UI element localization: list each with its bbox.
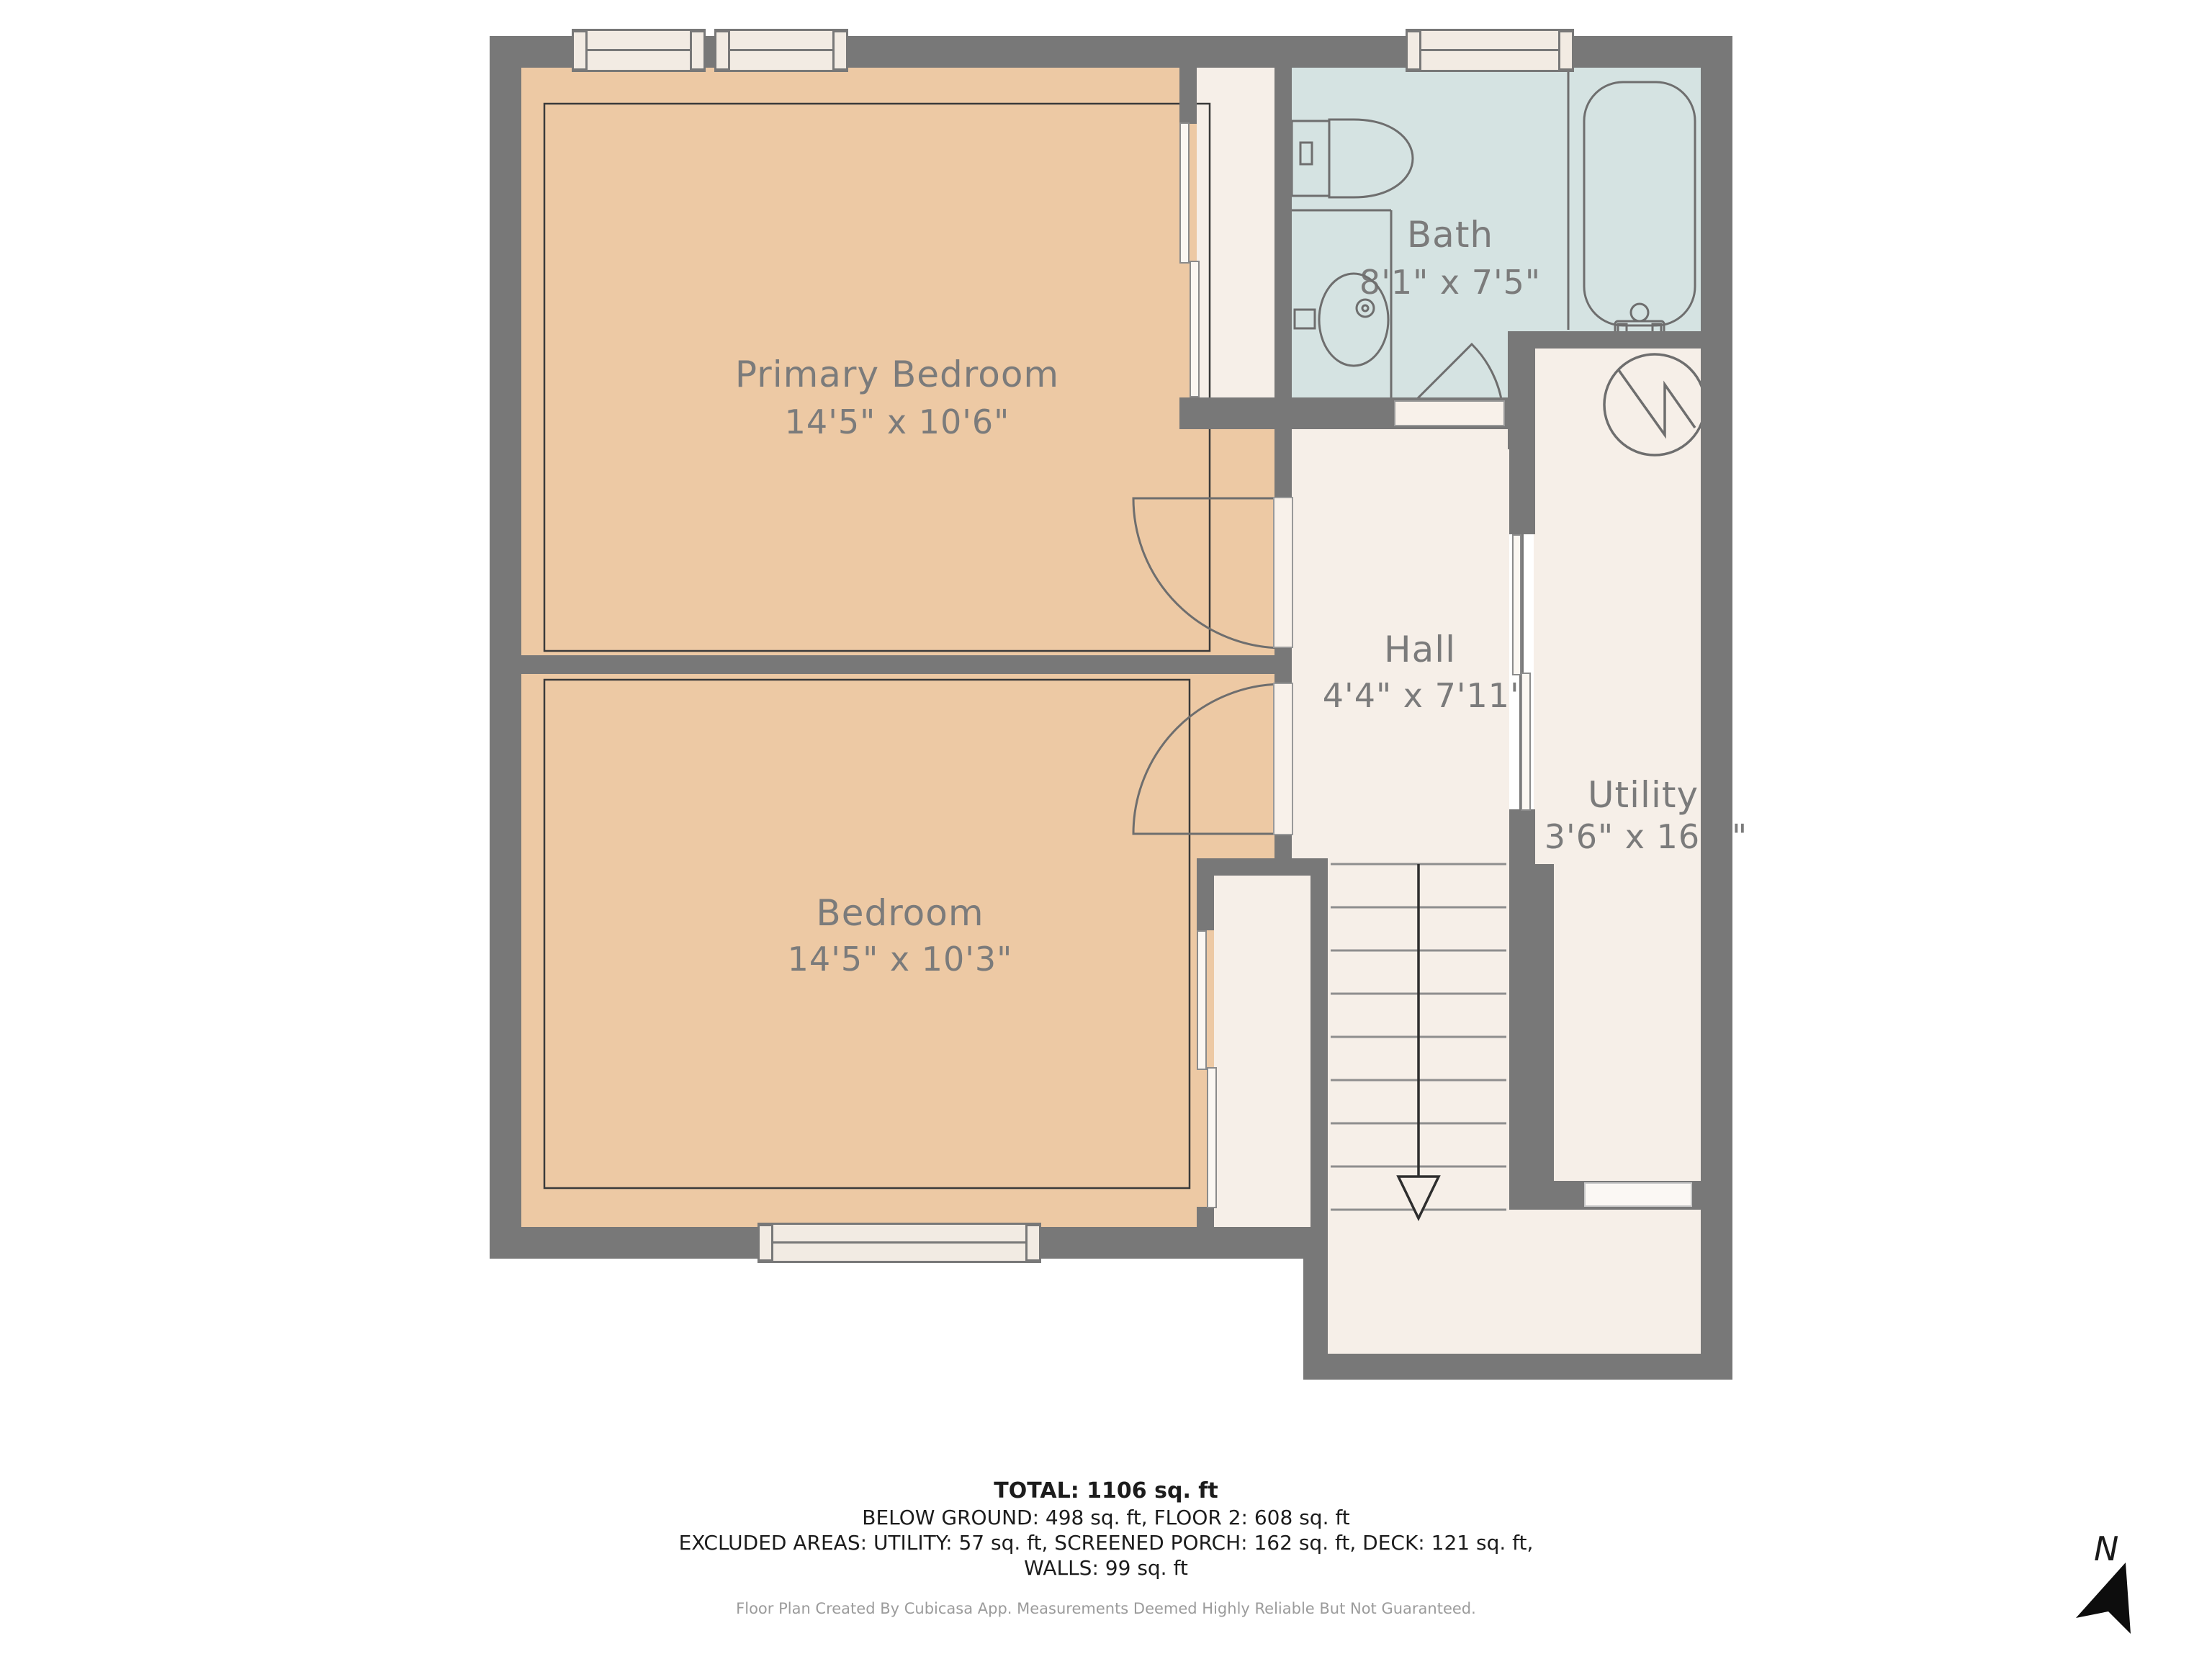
wall-hall-utility-lower [1509, 809, 1535, 867]
window-mullion [760, 1241, 1039, 1244]
floorplan-linework [0, 0, 2212, 1659]
window-primary-bedroom-left [572, 29, 706, 72]
window-bath [1406, 29, 1574, 72]
door-swing-bedroom [1133, 684, 1283, 834]
door-sill-bedroom [1273, 683, 1293, 835]
window-post [832, 30, 848, 71]
sliding-door-closet-top-leaf [1190, 261, 1200, 397]
wall-exterior-right [1701, 36, 1732, 1380]
window-post [1025, 1224, 1041, 1262]
door-sill-primary-bedroom [1273, 497, 1293, 648]
wall-landing-left [1303, 1227, 1328, 1380]
wall-closet-top-right [1274, 68, 1292, 397]
disclaimer-text: Floor Plan Created By Cubicasa App. Meas… [0, 1600, 2212, 1617]
door-sill-bath [1394, 400, 1505, 426]
wall-closet-lower-stub-b [1197, 1207, 1214, 1227]
wall-closet-lower-top [1197, 858, 1328, 876]
window-post [1406, 30, 1421, 71]
toilet-icon [1292, 120, 1413, 197]
window-post [572, 30, 588, 71]
wall-stairs-utility [1509, 864, 1554, 1210]
wall-utility-top [1508, 331, 1701, 349]
summary-excluded: EXCLUDED AREAS: UTILITY: 57 sq. ft, SCRE… [0, 1530, 2212, 1555]
window-post [714, 30, 730, 71]
window-mullion [1408, 49, 1572, 51]
floor-outline-primary [544, 104, 1210, 1188]
sliding-door-utility-leaf [1521, 673, 1531, 811]
window-post [690, 30, 706, 71]
wall-closet-lower-right [1310, 876, 1328, 1227]
sliding-door-closet-lower-leaf [1197, 930, 1207, 1070]
window-bedroom [757, 1223, 1041, 1263]
window-primary-bedroom-right [714, 29, 848, 72]
summary-below-ground: BELOW GROUND: 498 sq. ft, FLOOR 2: 608 s… [0, 1505, 2212, 1530]
sliding-door-closet-lower-leaf [1207, 1067, 1217, 1208]
summary-total: TOTAL: 1106 sq. ft [0, 1478, 2212, 1505]
wall-hall-utility-upper [1509, 449, 1535, 534]
wall-closet-lower-stub-a [1197, 876, 1214, 930]
window-mullion [716, 49, 846, 51]
wall-between-bedrooms [521, 655, 1274, 674]
opening-utility-bottom [1584, 1182, 1692, 1207]
wall-closet-top-stub [1179, 68, 1197, 124]
bathtub-icon [1568, 69, 1695, 337]
window-post [757, 1224, 773, 1262]
summary-walls: WALLS: 99 sq. ft [0, 1555, 2212, 1581]
compass-north-label: N [2094, 1529, 2118, 1568]
sliding-door-closet-top-leaf [1179, 122, 1190, 264]
stairs-down-arrow-icon [1398, 864, 1439, 1218]
sliding-door-utility-leaf [1512, 534, 1521, 675]
area-summary: TOTAL: 1106 sq. ft BELOW GROUND: 498 sq.… [0, 1478, 2212, 1581]
window-mullion [574, 49, 703, 51]
wall-utility-stub-vert [1508, 331, 1535, 449]
window-post [1558, 30, 1574, 71]
wall-exterior-bottom-right [1303, 1354, 1732, 1380]
wall-exterior-left [490, 36, 521, 1259]
door-swing-primary-bedroom [1133, 498, 1283, 648]
washer-dryer-icon [1604, 354, 1705, 455]
sink-icon [1292, 210, 1391, 428]
